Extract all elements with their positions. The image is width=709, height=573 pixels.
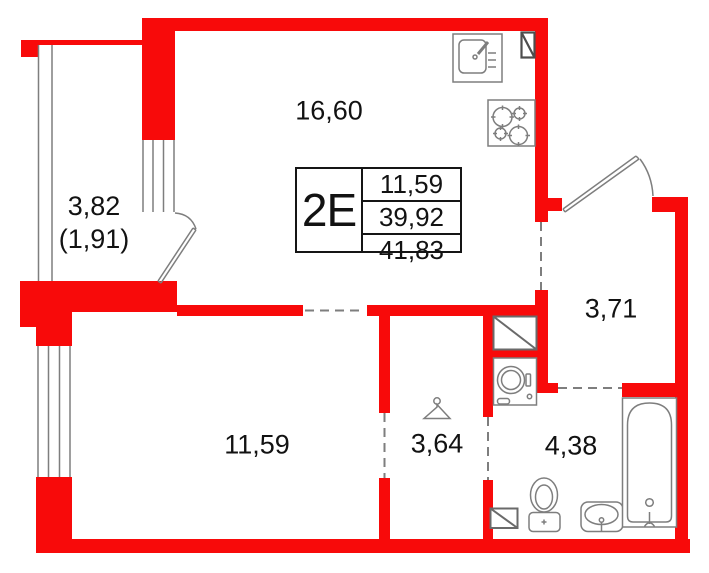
unit-area-rows: 11,59 39,92 41,83 — [363, 169, 460, 251]
hallway-area-label: 3,71 — [585, 293, 638, 326]
wall-segment — [142, 18, 548, 31]
wall-segment — [548, 198, 562, 211]
wall-segment — [20, 281, 37, 327]
wall-segment — [367, 305, 548, 316]
balcony-window — [143, 140, 174, 212]
unit-type-label: 2Е — [297, 169, 363, 251]
cooktop-icon — [488, 100, 535, 147]
kitchen-living-area-label: 16,60 — [295, 95, 363, 128]
wall-segment — [537, 316, 548, 393]
wall-segment — [36, 477, 72, 539]
balcony-area-value: 3,82 — [68, 191, 121, 221]
hanger-icon — [424, 398, 450, 419]
unit-total-area: 41,83 — [363, 235, 460, 266]
wall-segment — [483, 316, 493, 417]
wall-segment — [20, 281, 177, 312]
balcony-door-swing-icon — [158, 213, 196, 283]
unit-info-table: 2Е 11,59 39,92 41,83 — [295, 167, 462, 253]
unit-area: 39,92 — [363, 202, 460, 235]
balcony-glazing — [39, 45, 53, 281]
washing-machine-icon — [494, 358, 537, 405]
bedroom-area-label: 11,59 — [224, 429, 290, 462]
washbasin-icon — [581, 502, 623, 532]
entrance-door-swing-icon — [563, 156, 653, 212]
dressing-area-label: 3,64 — [411, 428, 464, 461]
wall-segment — [21, 40, 38, 57]
duct-box-icon — [494, 317, 537, 350]
toilet-icon — [529, 478, 560, 532]
vent-grille-icon — [491, 509, 518, 529]
wall-segment — [622, 383, 675, 397]
bedroom-window — [38, 346, 70, 477]
wall-segment — [36, 539, 690, 553]
bathtub-icon — [623, 398, 677, 527]
wall-segment — [493, 350, 537, 358]
wall-segment — [379, 478, 390, 539]
wall-segment — [177, 305, 303, 316]
unit-living-area: 11,59 — [363, 169, 460, 202]
plan-drawing — [0, 0, 709, 573]
kitchen-sink-icon — [453, 34, 502, 82]
balcony-area-coeff: (1,91) — [59, 224, 130, 254]
wall-segment — [535, 18, 548, 222]
wall-segment — [38, 40, 142, 45]
wall-segment — [142, 18, 175, 140]
bathroom-area-label: 4,38 — [545, 430, 598, 463]
wall-segment — [537, 383, 558, 393]
vent-shaft-icon — [522, 33, 535, 58]
floor-plan: 16,60 3,82 (1,91) 11,59 3,64 4,38 3,71 2… — [0, 0, 709, 573]
balcony-area-label: 3,82 (1,91) — [59, 190, 130, 256]
wall-segment — [379, 316, 390, 413]
wall-segment — [36, 312, 72, 346]
